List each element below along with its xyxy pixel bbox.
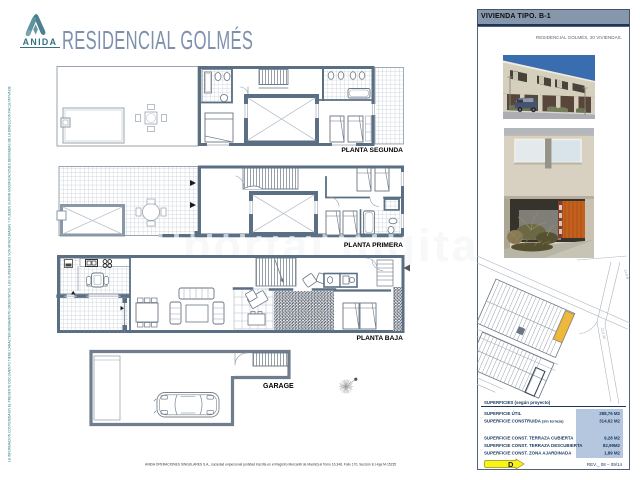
- svg-text:CLA B: CLA B: [623, 269, 630, 280]
- svg-text:CLA 30: CLA 30: [600, 327, 606, 339]
